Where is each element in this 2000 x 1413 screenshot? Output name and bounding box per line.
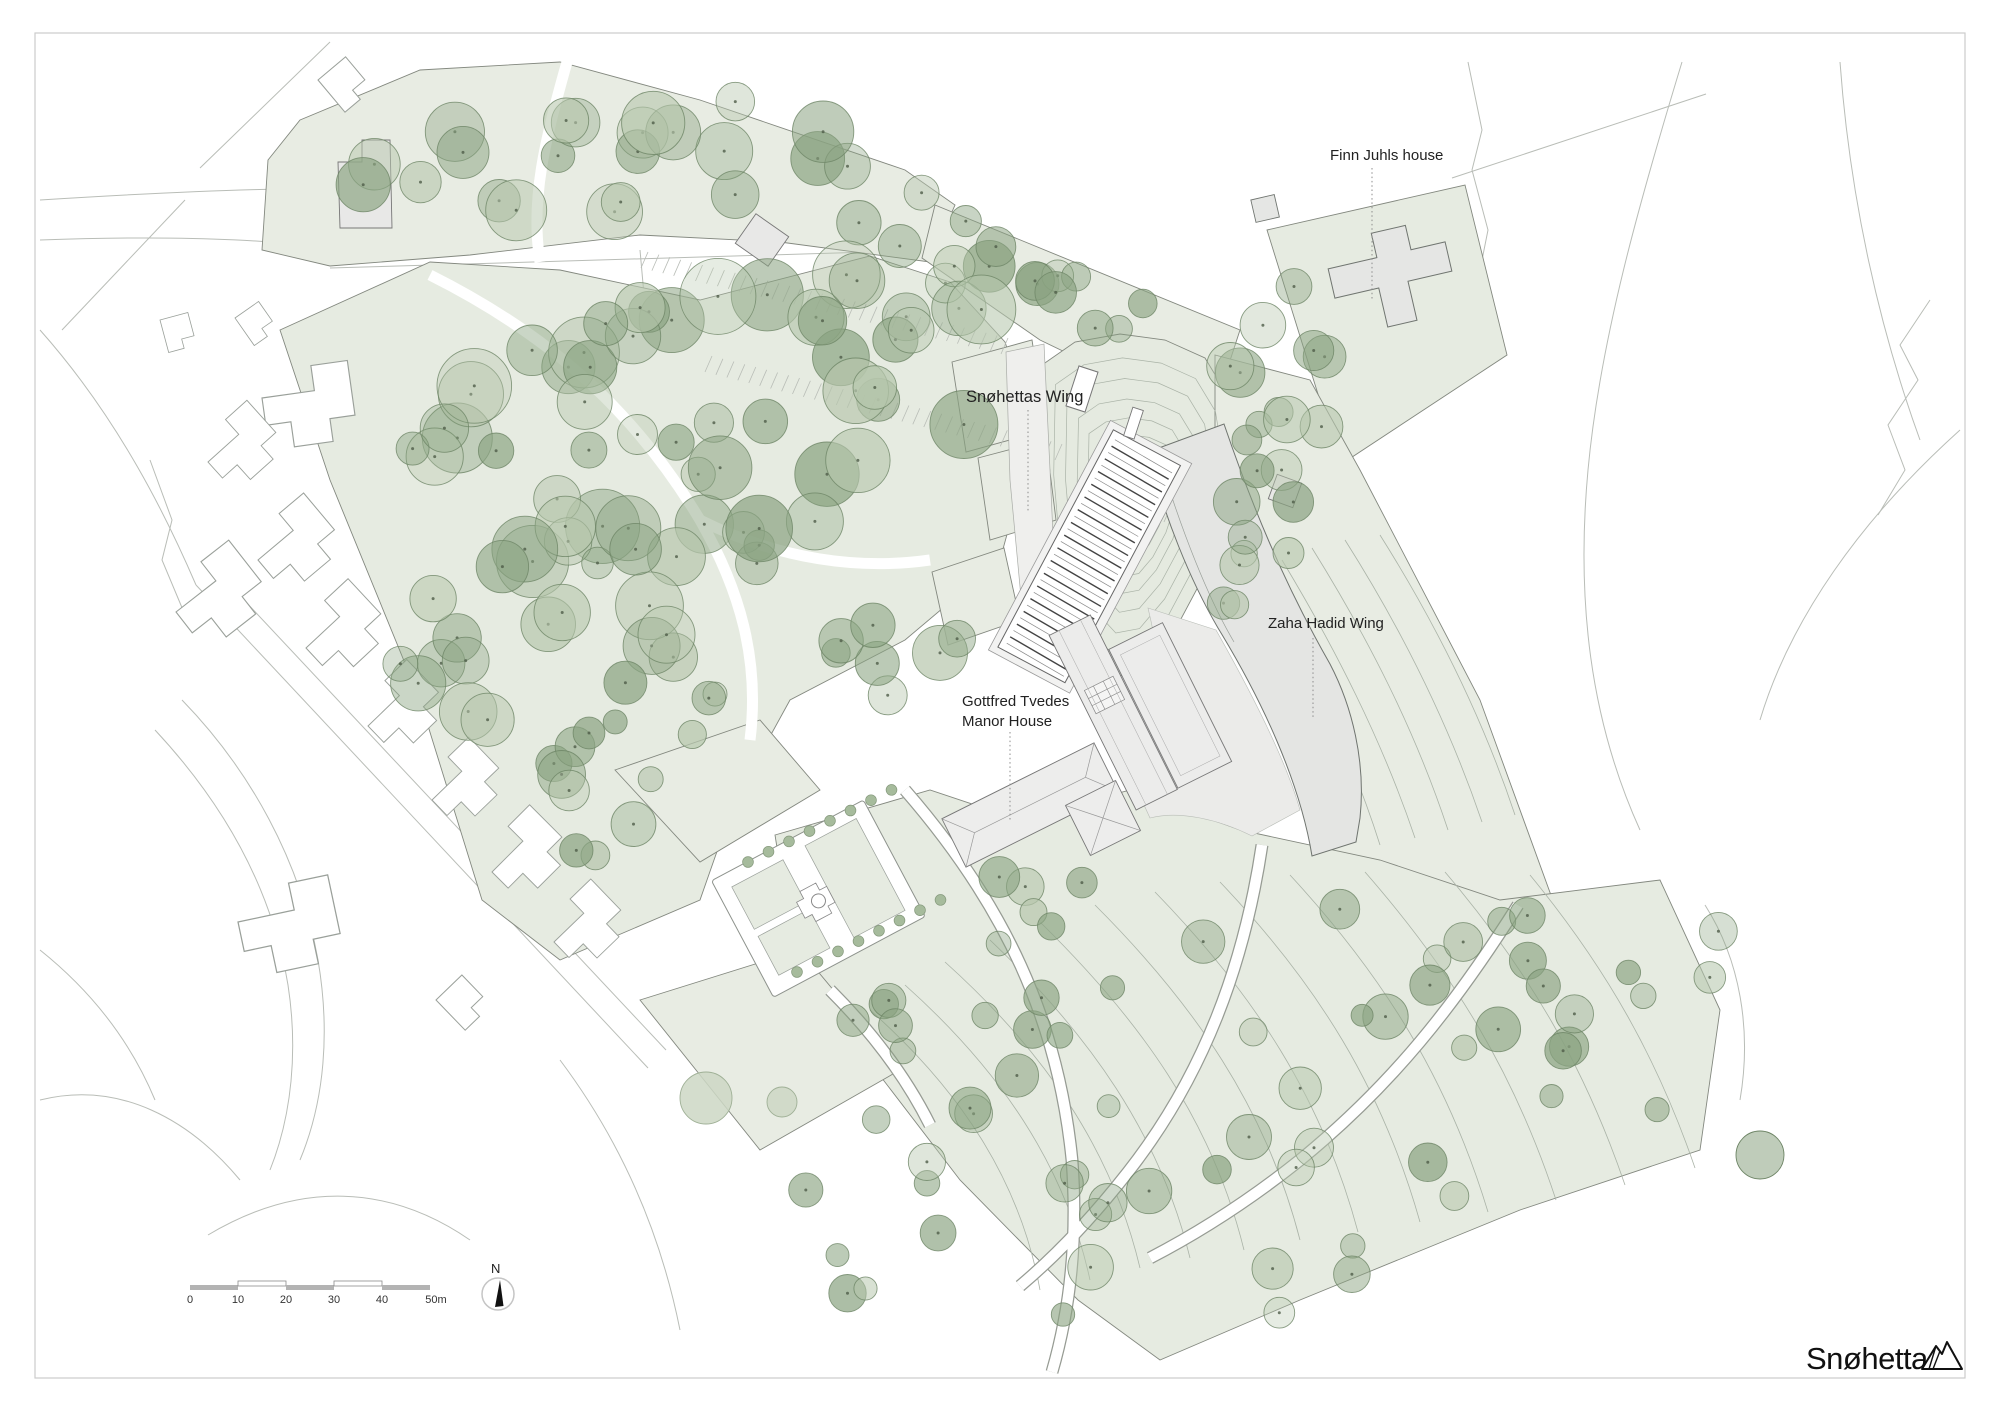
tree-trunk-dot [589, 366, 592, 369]
tree-trunk-dot [1285, 418, 1288, 421]
tree-trunk-dot [964, 220, 967, 223]
tree-trunk-dot [632, 823, 635, 826]
tree [1097, 1095, 1120, 1118]
allee-tree-dot [784, 836, 795, 847]
tree-trunk-dot [1350, 1273, 1353, 1276]
tree-trunk-dot [1238, 564, 1241, 567]
tree-trunk-dot [1054, 291, 1057, 294]
tree-trunk-dot [411, 447, 414, 450]
tree-trunk-dot [419, 181, 422, 184]
tree-trunk-dot [1462, 941, 1465, 944]
tree-trunk-dot [1542, 985, 1545, 988]
scale-tick-0: 0 [187, 1294, 193, 1306]
tree [854, 1277, 877, 1300]
tree-trunk-dot [1094, 327, 1097, 330]
tree-trunk-dot [962, 423, 965, 426]
tree-trunk-dot [634, 548, 637, 551]
tree-trunk-dot [1261, 324, 1264, 327]
tree-trunk-dot [734, 100, 737, 103]
tree-trunk-dot [501, 565, 504, 568]
tree-trunk-dot [1295, 1166, 1298, 1169]
allee-tree-dot [825, 815, 836, 826]
tree-trunk-dot [1248, 1136, 1251, 1139]
tree [1440, 1182, 1469, 1211]
tree-trunk-dot [1040, 996, 1043, 999]
tree-trunk-dot [557, 154, 560, 157]
north-label: N [491, 1261, 500, 1276]
site-plan-drawing: Finn Juhls house Snøhettas Wing Zaha Had… [0, 0, 2000, 1413]
tree-trunk-dot [588, 732, 591, 735]
allee-tree-dot [874, 925, 885, 936]
tree-trunk-dot [937, 1232, 940, 1235]
tree [1452, 1035, 1477, 1060]
tree-trunk-dot [1313, 1146, 1316, 1149]
tree [1203, 1155, 1232, 1184]
tree-trunk-dot [675, 555, 678, 558]
tree [1616, 960, 1640, 984]
tree-trunk-dot [652, 121, 655, 124]
tree-trunk-dot [464, 659, 467, 662]
tree-trunk-dot [857, 221, 860, 224]
tree-trunk-dot [755, 562, 758, 565]
tree-trunk-dot [1293, 285, 1296, 288]
tree [1221, 591, 1249, 619]
tree-trunk-dot [568, 789, 571, 792]
tree-trunk-dot [462, 151, 465, 154]
tree-trunk-dot [956, 637, 959, 640]
allee-tree-dot [845, 805, 856, 816]
tree-trunk-dot [1229, 365, 1232, 368]
tree [1645, 1098, 1669, 1122]
tree-trunk-dot [910, 329, 913, 332]
tree-trunk-dot [764, 420, 767, 423]
tree [1100, 976, 1124, 1000]
tree-trunk-dot [898, 245, 901, 248]
allee-tree-dot [743, 857, 754, 868]
label-snohetta-wing: Snøhettas Wing [966, 388, 1083, 406]
tree-trunk-dot [766, 293, 769, 296]
tree-trunk-dot [998, 876, 1001, 879]
tree-trunk-dot [587, 449, 590, 452]
tree-trunk-dot [1034, 279, 1037, 282]
tree-trunk-dot [925, 1160, 928, 1163]
label-zaha-hadid-wing: Zaha Hadid Wing [1268, 615, 1384, 632]
tree-trunk-dot [846, 1292, 849, 1295]
tree-trunk-dot [443, 427, 446, 430]
tree-trunk-dot [574, 745, 577, 748]
tree-trunk-dot [846, 165, 849, 168]
allee-tree-dot [792, 967, 803, 978]
tree-trunk-dot [636, 433, 639, 436]
logo-wordmark: Snøhetta [1806, 1341, 1929, 1376]
scale-tick-30: 30 [328, 1294, 340, 1306]
tree-trunk-dot [1089, 1266, 1092, 1269]
tree-trunk-dot [887, 999, 890, 1002]
tree-trunk-dot [939, 651, 942, 654]
allee-tree-dot [894, 915, 905, 926]
tree [826, 1244, 849, 1267]
label-manor-line2: Manor House [962, 713, 1052, 730]
scale-tick-20: 20 [280, 1294, 292, 1306]
tree [1232, 425, 1262, 455]
tree-trunk-dot [1428, 984, 1431, 987]
tree-trunk-dot [716, 295, 719, 298]
tree-trunk-dot [822, 130, 825, 133]
tree-trunk-dot [362, 183, 365, 186]
scale-tick-50m: 50m [425, 1294, 446, 1306]
tree-trunk-dot [632, 335, 635, 338]
tree-trunk-dot [433, 455, 436, 458]
tree-trunk-dot [1526, 959, 1529, 962]
tree-trunk-dot [670, 319, 673, 322]
allee-tree-dot [935, 895, 946, 906]
tree-trunk-dot [821, 319, 824, 322]
tree [972, 1002, 998, 1028]
tree-trunk-dot [1063, 1182, 1066, 1185]
label-finn-juhl-house: Finn Juhls house [1330, 147, 1443, 164]
tree-trunk-dot [886, 694, 889, 697]
tree-trunk-dot [804, 1189, 807, 1192]
tree-trunk-dot [665, 633, 668, 636]
tree [862, 1106, 890, 1134]
tree [1351, 1004, 1373, 1026]
scale-tick-40: 40 [376, 1294, 388, 1306]
tree-trunk-dot [1031, 1028, 1034, 1031]
tree-trunk-dot [758, 527, 761, 530]
tree-trunk-dot [1271, 1267, 1274, 1270]
site-plan-sheet: Finn Juhls house Snøhettas Wing Zaha Had… [0, 0, 2000, 1413]
tree [603, 710, 627, 734]
tree-trunk-dot [1278, 1311, 1281, 1314]
tree-trunk-dot [639, 306, 642, 309]
tree-trunk-dot [564, 525, 567, 528]
tree-trunk-dot [1080, 881, 1083, 884]
tree-trunk-dot [1256, 469, 1259, 472]
tree [1129, 289, 1158, 318]
tree-trunk-dot [871, 624, 874, 627]
tree-trunk-dot [953, 265, 956, 268]
tree-trunk-dot [719, 466, 722, 469]
tree-trunk-dot [486, 718, 489, 721]
tree-trunk-dot [624, 681, 627, 684]
tree [1047, 1022, 1073, 1048]
tree-trunk-dot [876, 662, 879, 665]
tree-trunk-dot [1426, 1161, 1429, 1164]
tree-trunk-dot [1717, 930, 1720, 933]
tree-trunk-dot [920, 191, 923, 194]
tree-trunk-dot [561, 611, 564, 614]
tree-trunk-dot [1312, 349, 1315, 352]
tree-trunk-dot [813, 520, 816, 523]
tree-trunk-dot [1148, 1190, 1151, 1193]
tree-trunk-dot [734, 193, 737, 196]
tree [1239, 1018, 1267, 1046]
tree-trunk-dot [1024, 885, 1027, 888]
tree-trunk-dot [432, 597, 435, 600]
tree-trunk-dot [840, 639, 843, 642]
tree-trunk-dot [1338, 908, 1341, 911]
tree-trunk-dot [523, 548, 526, 551]
allee-tree-dot [866, 795, 877, 806]
tree [1540, 1085, 1563, 1108]
tree-trunk-dot [1292, 501, 1295, 504]
tree-trunk-dot [583, 400, 586, 403]
tree-trunk-dot [1299, 1087, 1302, 1090]
allee-tree-dot [886, 785, 897, 796]
tree [1341, 1234, 1365, 1258]
tree [638, 767, 663, 792]
tree-trunk-dot [723, 150, 726, 153]
tree-trunk-dot [515, 209, 518, 212]
tree-trunk-dot [894, 1024, 897, 1027]
label-manor-line1: Gottfred Tvedes [962, 693, 1069, 710]
tree-trunk-dot [619, 201, 622, 204]
allee-tree-dot [763, 846, 774, 857]
allee-tree-dot [833, 946, 844, 957]
tree-trunk-dot [707, 697, 710, 700]
tree-trunk-dot [1384, 1015, 1387, 1018]
tree-trunk-dot [1287, 552, 1290, 555]
tree-trunk-dot [596, 562, 599, 565]
tree-trunk-dot [1320, 425, 1323, 428]
tree-trunk-dot [712, 421, 715, 424]
tree-trunk-dot [473, 384, 476, 387]
tree-trunk-dot [604, 322, 607, 325]
tree-trunk-dot [703, 523, 706, 526]
tree-trunk-dot [873, 386, 876, 389]
tree-trunk-dot [575, 849, 578, 852]
tree [1631, 983, 1656, 1008]
tree-trunk-dot [1106, 1201, 1109, 1204]
finn-juhl-annex [1251, 195, 1280, 223]
tree-trunk-dot [1573, 1012, 1576, 1015]
tree-trunk-dot [969, 1107, 972, 1110]
tree [678, 720, 706, 748]
tree-trunk-dot [994, 245, 997, 248]
tree-trunk-dot [531, 349, 534, 352]
tree-trunk-dot [1708, 976, 1711, 979]
tree-trunk-dot [980, 308, 983, 311]
tree-trunk-dot [1015, 1074, 1018, 1077]
tree-trunk-dot [1280, 469, 1283, 472]
tree-trunk-dot [839, 356, 842, 359]
scale-tick-10: 10 [232, 1294, 244, 1306]
tree-trunk-dot [399, 662, 402, 665]
allee-tree-dot [915, 905, 926, 916]
tree-trunk-dot [675, 441, 678, 444]
tree-trunk-dot [852, 1019, 855, 1022]
tree-trunk-dot [1562, 1049, 1565, 1052]
tree [1038, 913, 1065, 940]
tree [1051, 1303, 1074, 1326]
tree-trunk-dot [648, 604, 651, 607]
tree-trunk-dot [856, 279, 859, 282]
tree-trunk-dot [495, 449, 498, 452]
tree-trunk-dot [565, 119, 568, 122]
allee-tree-dot [812, 956, 823, 967]
tree-trunk-dot [1244, 536, 1247, 539]
allee-tree-dot [853, 936, 864, 947]
tree-trunk-dot [856, 459, 859, 462]
allee-tree-dot [804, 826, 815, 837]
tree-trunk-dot [1235, 500, 1238, 503]
tree-trunk-dot [1497, 1028, 1500, 1031]
tree [986, 931, 1011, 956]
tree-trunk-dot [417, 682, 420, 685]
tree-trunk-dot [1526, 914, 1529, 917]
tree-trunk-dot [1202, 940, 1205, 943]
